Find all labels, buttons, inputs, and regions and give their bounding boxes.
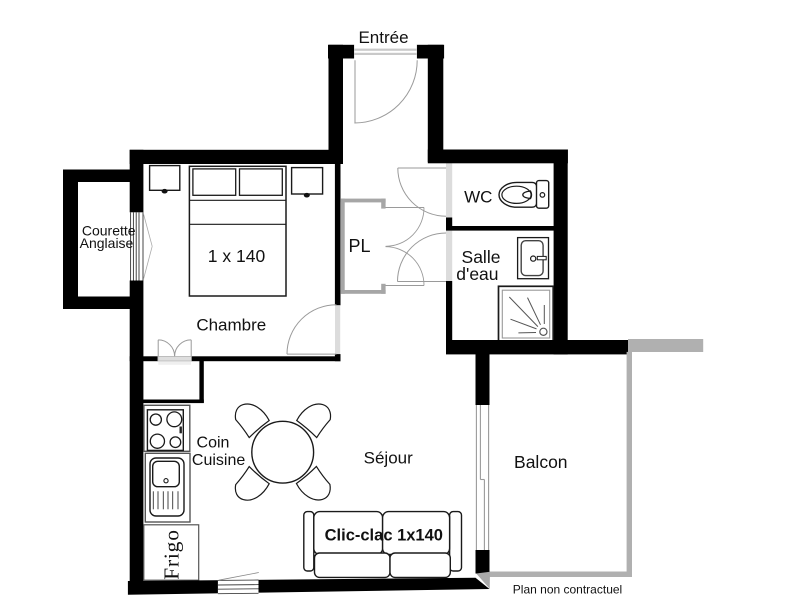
svg-text:Cuisine: Cuisine bbox=[192, 452, 245, 469]
svg-text:Clic-clac 1x140: Clic-clac 1x140 bbox=[325, 526, 443, 544]
svg-text:Balcon: Balcon bbox=[514, 452, 568, 472]
svg-text:Séjour: Séjour bbox=[364, 448, 413, 467]
svg-text:Coin: Coin bbox=[197, 435, 230, 452]
svg-text:Anglaise: Anglaise bbox=[80, 235, 134, 251]
svg-text:PL: PL bbox=[348, 236, 370, 256]
svg-text:Chambre: Chambre bbox=[196, 316, 266, 335]
svg-text:Frigo: Frigo bbox=[159, 529, 183, 580]
svg-text:1 x 140: 1 x 140 bbox=[208, 246, 266, 266]
svg-text:Entrée: Entrée bbox=[358, 28, 408, 47]
svg-text:Plan non contractuel: Plan non contractuel bbox=[513, 583, 622, 597]
svg-text:WC: WC bbox=[464, 187, 492, 206]
svg-text:d'eau: d'eau bbox=[456, 264, 498, 284]
